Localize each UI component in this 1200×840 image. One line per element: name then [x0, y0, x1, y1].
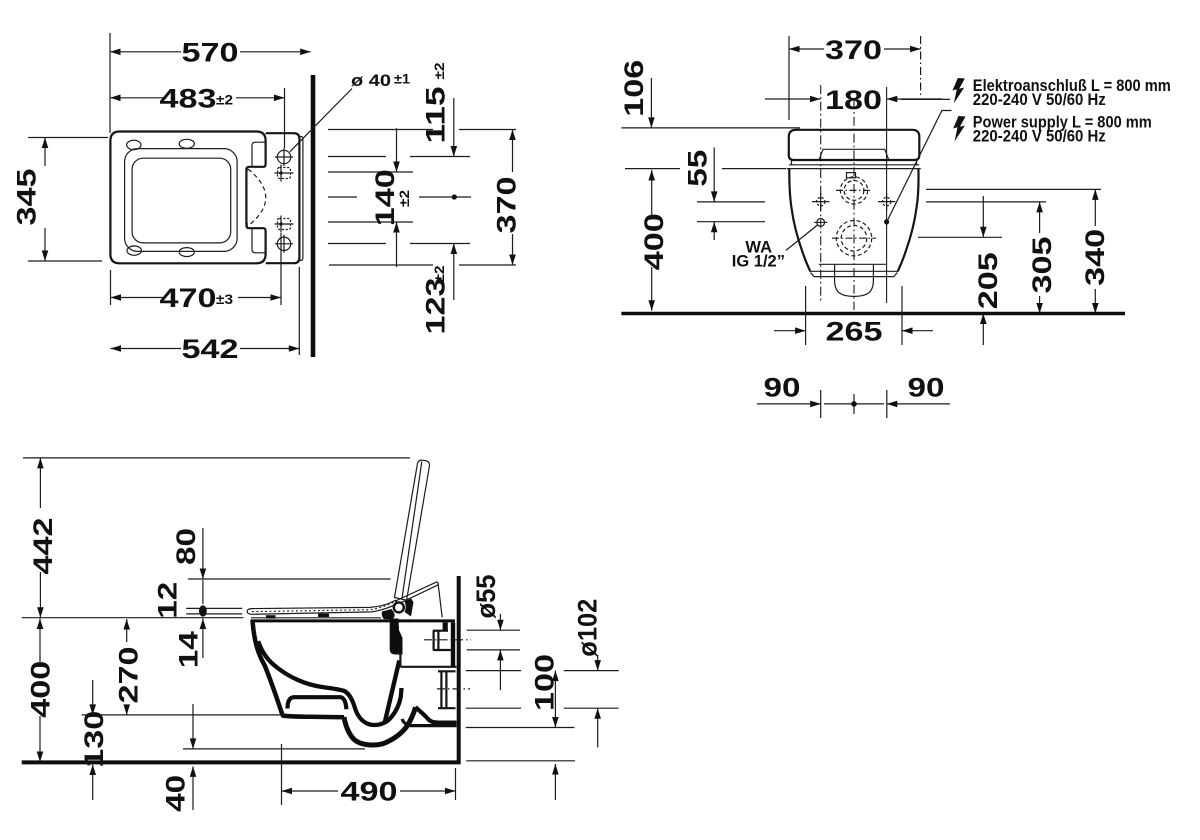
- svg-text:265: 265: [826, 316, 883, 346]
- svg-text:±2: ±2: [216, 93, 233, 108]
- svg-text:270: 270: [114, 647, 144, 704]
- svg-text:±3: ±3: [216, 292, 234, 307]
- svg-text:80: 80: [171, 528, 201, 565]
- svg-text:90: 90: [908, 373, 945, 403]
- svg-text:ø55: ø55: [471, 575, 501, 619]
- svg-text:570: 570: [182, 38, 239, 68]
- svg-text:123: 123: [421, 278, 451, 335]
- svg-text:470: 470: [160, 283, 217, 313]
- svg-text:205: 205: [973, 252, 1003, 309]
- svg-text:106: 106: [619, 60, 649, 117]
- svg-text:490: 490: [341, 777, 398, 807]
- svg-text:±2: ±2: [432, 63, 447, 80]
- svg-text:483: 483: [160, 84, 217, 114]
- svg-text:400: 400: [26, 661, 56, 718]
- svg-text:220-240 V 50/60 Hz: 220-240 V 50/60 Hz: [973, 91, 1106, 109]
- svg-text:14: 14: [174, 631, 204, 668]
- svg-text:100: 100: [530, 654, 560, 711]
- svg-text:345: 345: [12, 169, 42, 226]
- svg-text:140: 140: [370, 169, 400, 226]
- svg-text:±1: ±1: [394, 72, 411, 87]
- svg-text:±2: ±2: [432, 266, 447, 283]
- svg-text:115: 115: [421, 87, 451, 144]
- svg-text:442: 442: [28, 518, 58, 575]
- svg-text:12: 12: [153, 582, 183, 619]
- svg-text:±2: ±2: [397, 190, 412, 207]
- svg-text:370: 370: [825, 35, 882, 65]
- svg-text:40: 40: [161, 775, 191, 812]
- svg-text:400: 400: [639, 213, 669, 270]
- svg-text:55: 55: [683, 150, 713, 187]
- svg-text:370: 370: [492, 177, 522, 234]
- svg-text:ø102: ø102: [573, 599, 603, 657]
- svg-text:220-240 V 50/60 Hz: 220-240 V 50/60 Hz: [973, 128, 1106, 146]
- svg-text:340: 340: [1080, 229, 1110, 286]
- svg-text:130: 130: [79, 711, 109, 768]
- svg-text:542: 542: [182, 334, 239, 364]
- svg-text:90: 90: [764, 373, 801, 403]
- svg-text:ø 40: ø 40: [351, 72, 391, 90]
- svg-text:305: 305: [1027, 237, 1057, 294]
- svg-text:IG 1/2”: IG 1/2”: [732, 253, 785, 271]
- svg-text:180: 180: [825, 85, 882, 115]
